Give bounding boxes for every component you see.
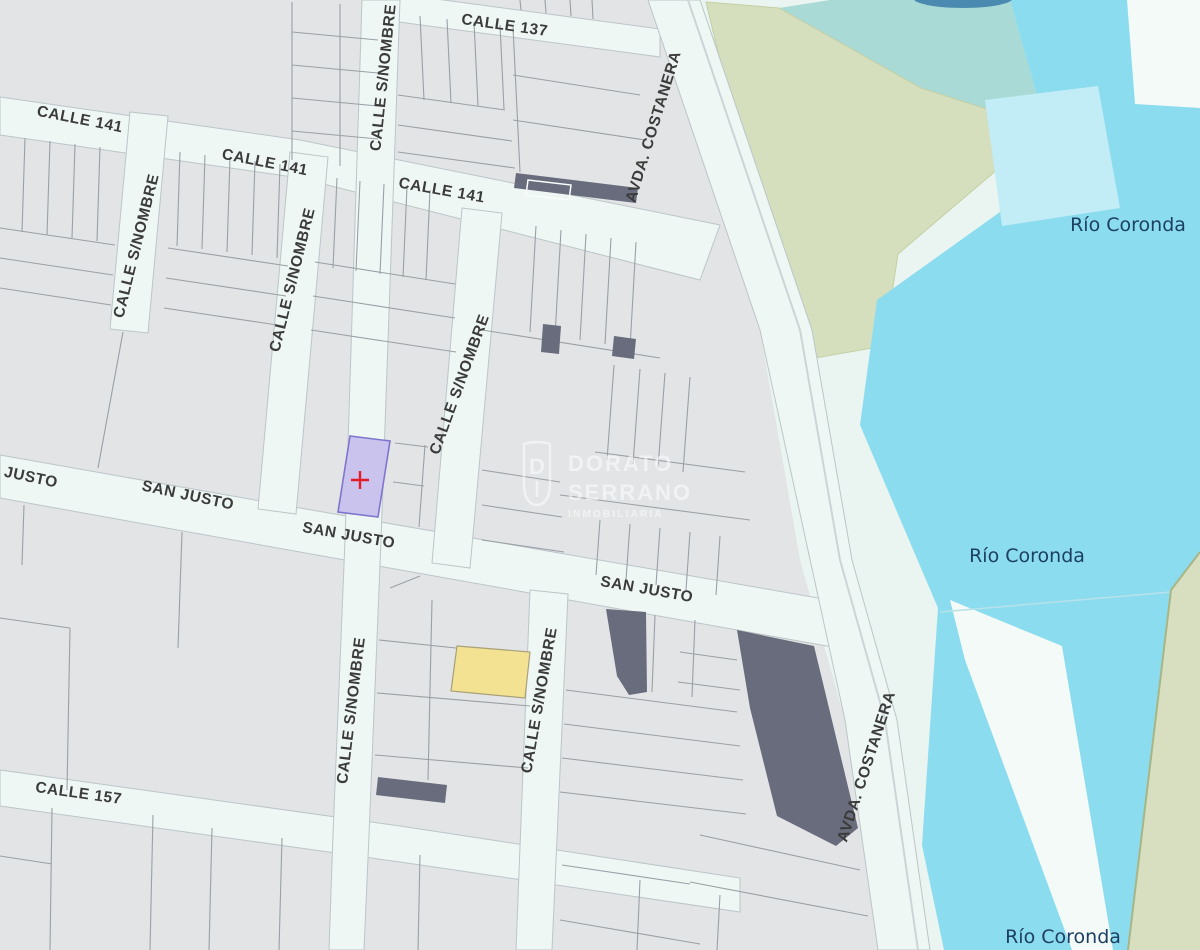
watermark-line2: SERRANO xyxy=(568,480,692,505)
label-rio-coronda-mid: Río Coronda xyxy=(969,545,1085,567)
label-rio-coronda-north: Río Coronda xyxy=(1070,214,1186,236)
dark-parcel-square-1 xyxy=(541,324,561,354)
yellow-highlight-parcel xyxy=(451,646,530,698)
watermark-tagline: INMOBILIARIA xyxy=(568,509,664,520)
svg-text:D: D xyxy=(529,454,545,479)
map-canvas[interactable]: CALLE 137 CALLE 141 CALLE 141 CALLE 141 … xyxy=(0,0,1200,950)
light-water-patch xyxy=(985,86,1120,226)
label-rio-coronda-south: Río Coronda xyxy=(1005,926,1121,948)
map-viewport[interactable]: CALLE 137 CALLE 141 CALLE 141 CALLE 141 … xyxy=(0,0,1200,950)
white-islet-corner xyxy=(1127,0,1200,108)
dark-parcel-square-2 xyxy=(612,336,636,359)
watermark-line1: DORATO xyxy=(568,451,673,476)
